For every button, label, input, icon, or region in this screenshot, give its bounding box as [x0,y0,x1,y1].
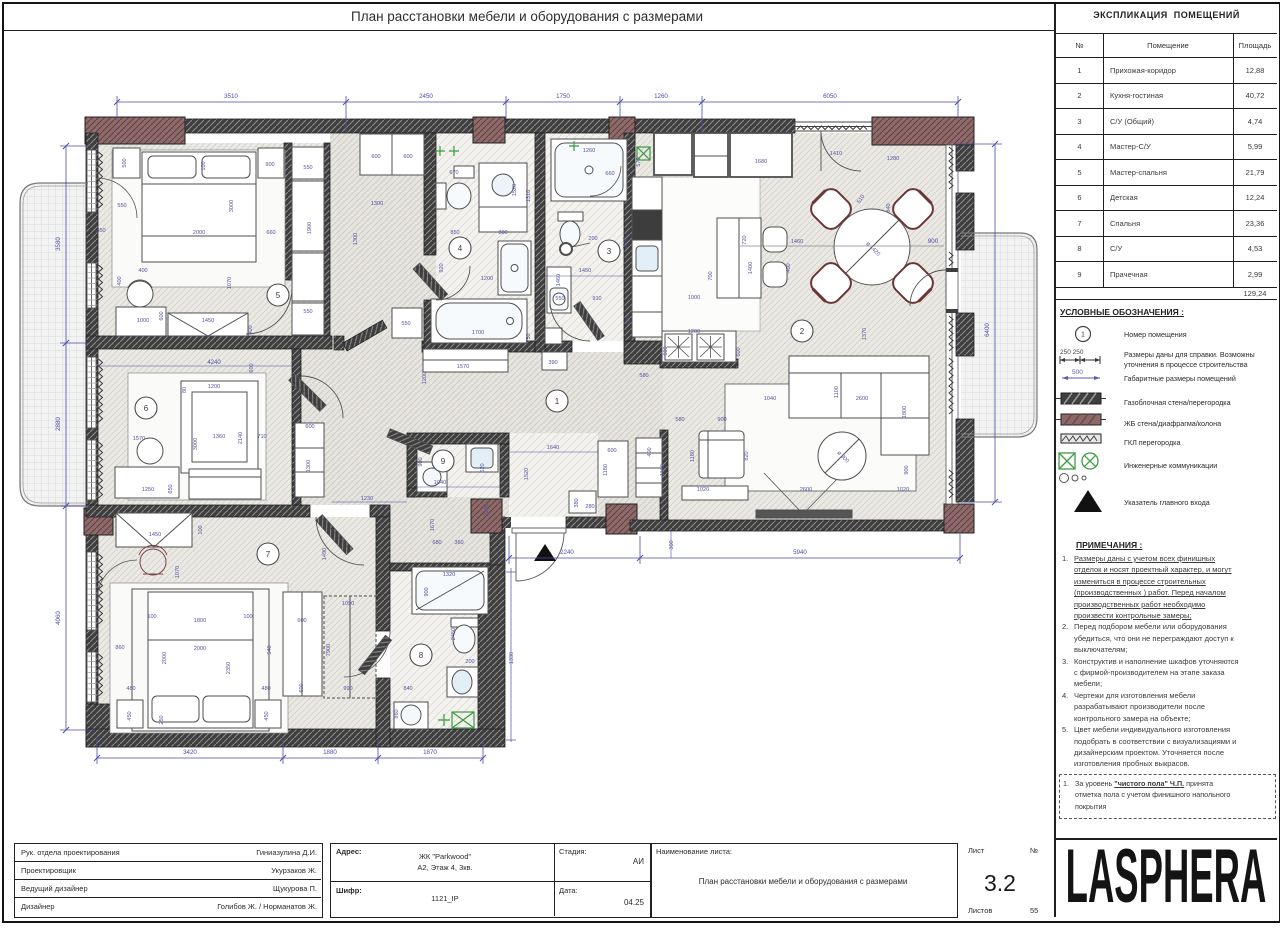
svg-text:600: 600 [736,347,742,356]
svg-text:570: 570 [636,157,642,166]
svg-text:1370: 1370 [862,328,868,340]
svg-text:1160: 1160 [660,464,666,476]
svg-text:580: 580 [675,417,684,423]
svg-text:450: 450 [264,711,270,720]
svg-text:1450: 1450 [149,532,161,538]
svg-text:900: 900 [717,417,726,423]
svg-text:550: 550 [401,321,410,327]
svg-text:2600: 2600 [856,396,868,402]
svg-text:80: 80 [182,387,188,393]
svg-text:500: 500 [1072,369,1083,376]
svg-text:280: 280 [585,504,594,510]
svg-text:1300: 1300 [371,201,383,207]
svg-text:670: 670 [449,170,458,176]
svg-text:600: 600 [297,618,306,624]
svg-text:600: 600 [626,315,632,324]
svg-text:1700: 1700 [472,330,484,336]
svg-text:550: 550 [303,309,312,315]
svg-text:1040: 1040 [764,396,776,402]
svg-text:1100: 1100 [834,386,840,398]
svg-text:1260: 1260 [654,93,668,100]
svg-text:200: 200 [588,236,597,242]
svg-text:1490: 1490 [322,548,328,560]
svg-text:720: 720 [742,235,748,244]
svg-text:4060: 4060 [55,611,62,625]
svg-text:100: 100 [198,525,204,534]
svg-text:390: 390 [548,360,557,366]
svg-text:1750: 1750 [556,93,570,100]
svg-text:1300: 1300 [353,233,359,245]
svg-text:480: 480 [261,686,270,692]
svg-text:1570: 1570 [457,364,469,370]
svg-text:6050: 6050 [823,93,837,100]
svg-text:1260: 1260 [583,148,595,154]
svg-text:660: 660 [266,230,275,236]
svg-text:900: 900 [424,587,430,596]
svg-text:1400: 1400 [748,262,754,274]
svg-text:4240: 4240 [207,360,221,366]
svg-text:2140: 2140 [238,432,244,444]
svg-text:1450: 1450 [202,318,214,324]
svg-text:7: 7 [266,550,271,559]
svg-text:540: 540 [267,645,273,654]
svg-text:600: 600 [305,424,314,430]
svg-text:620: 620 [480,463,486,472]
svg-text:1870: 1870 [423,749,437,756]
svg-text:1900: 1900 [307,222,313,234]
svg-text:1230: 1230 [361,496,373,502]
svg-text:750: 750 [526,333,532,342]
svg-text:1090: 1090 [342,601,354,607]
svg-text:8: 8 [419,651,424,660]
svg-text:840: 840 [886,203,892,212]
svg-text:990: 990 [343,686,352,692]
svg-text:600: 600 [403,154,412,160]
svg-text:600: 600 [159,311,165,320]
svg-text:1250: 1250 [142,487,154,493]
svg-text:1200: 1200 [208,384,220,390]
svg-text:2840: 2840 [623,237,629,249]
svg-text:LASPHERA: LASPHERA [1066,840,1267,917]
svg-text:2000: 2000 [194,646,206,652]
svg-text:1800: 1800 [194,618,206,624]
svg-text:3580: 3580 [55,237,62,251]
svg-text:1180: 1180 [603,464,609,476]
svg-text:900: 900 [418,457,424,466]
svg-text:1300: 1300 [306,460,312,472]
svg-text:3420: 3420 [183,749,197,756]
svg-text:1460: 1460 [791,239,803,245]
svg-text:250: 250 [159,715,165,724]
svg-text:2880: 2880 [55,417,62,431]
svg-text:550: 550 [303,165,312,171]
svg-text:5: 5 [276,291,281,300]
svg-text:600: 600 [607,448,616,454]
svg-text:920: 920 [439,263,445,272]
svg-text:500: 500 [122,158,128,167]
svg-text:100: 100 [147,614,156,620]
svg-text:1410: 1410 [830,151,842,157]
svg-text:900: 900 [904,465,910,474]
svg-text:1520: 1520 [512,184,518,196]
svg-text:850: 850 [450,230,459,236]
svg-text:1310: 1310 [526,190,532,202]
svg-text:1: 1 [1081,332,1085,339]
svg-text:1460: 1460 [556,274,562,286]
svg-text:1880: 1880 [323,749,337,756]
svg-text:9: 9 [441,457,446,466]
svg-text:580: 580 [639,373,648,379]
svg-text:600: 600 [299,683,305,692]
svg-text:400: 400 [248,325,254,334]
svg-text:900: 900 [928,238,939,245]
svg-text:1200: 1200 [422,372,428,384]
svg-text:6: 6 [144,404,149,413]
svg-text:710: 710 [257,434,266,440]
svg-text:2450: 2450 [419,93,433,100]
svg-text:250 250: 250 250 [1060,349,1084,356]
svg-text:860: 860 [394,709,400,718]
svg-text:2350: 2350 [226,662,232,674]
svg-text:400: 400 [786,263,792,272]
svg-text:1280: 1280 [887,156,899,162]
svg-text:1320: 1320 [443,572,455,578]
svg-text:3: 3 [607,247,612,256]
svg-text:7900: 7900 [326,644,332,656]
svg-text:850: 850 [96,228,105,234]
svg-text:5940: 5940 [793,549,807,556]
svg-text:550: 550 [117,203,126,209]
svg-text:900: 900 [265,162,274,168]
svg-text:2200: 2200 [484,504,490,516]
svg-text:680: 680 [432,540,441,546]
svg-text:1800: 1800 [902,406,908,418]
svg-text:1670: 1670 [430,519,436,531]
svg-text:600: 600 [663,346,669,355]
svg-text:2450: 2450 [451,628,457,640]
svg-text:1520: 1520 [524,468,530,480]
svg-text:550: 550 [555,296,564,302]
svg-text:380: 380 [574,498,580,507]
svg-text:1040: 1040 [434,480,446,486]
svg-text:400: 400 [647,447,653,456]
svg-text:1070: 1070 [175,566,181,578]
svg-text:1680: 1680 [755,159,767,165]
svg-text:4: 4 [458,244,463,253]
svg-text:100: 100 [201,161,207,170]
svg-text:450: 450 [127,711,133,720]
svg-text:1570: 1570 [133,436,145,442]
svg-text:910: 910 [592,296,601,302]
svg-text:360: 360 [454,540,463,546]
svg-text:1200: 1200 [481,276,493,282]
svg-text:1: 1 [555,397,560,406]
svg-text:1640: 1640 [547,445,559,451]
svg-text:1450: 1450 [579,268,591,274]
svg-text:2000: 2000 [193,230,205,236]
svg-text:2240: 2240 [560,549,574,556]
svg-text:3000: 3000 [229,200,235,212]
svg-text:650: 650 [168,484,174,493]
svg-text:2: 2 [800,327,805,336]
svg-text:1020: 1020 [697,487,709,493]
svg-text:1360: 1360 [213,434,225,440]
svg-text:2000: 2000 [162,652,168,664]
svg-text:1180: 1180 [690,450,696,462]
svg-text:840: 840 [403,686,412,692]
svg-text:600: 600 [249,363,255,372]
svg-text:480: 480 [126,686,135,692]
svg-text:860: 860 [115,645,124,651]
svg-text:660: 660 [605,171,614,177]
svg-text:880: 880 [498,230,507,236]
svg-text:1070: 1070 [227,277,233,289]
svg-text:700: 700 [708,271,714,280]
svg-text:400: 400 [117,276,123,285]
svg-text:1000: 1000 [688,295,700,301]
svg-text:300: 300 [669,540,675,549]
svg-text:3000: 3000 [193,438,199,450]
svg-text:200: 200 [465,659,474,665]
svg-text:100: 100 [243,614,252,620]
svg-text:1330: 1330 [509,652,515,664]
svg-text:1000: 1000 [137,318,149,324]
svg-text:600: 600 [371,154,380,160]
svg-text:6400: 6400 [984,323,991,337]
svg-text:3510: 3510 [224,93,238,100]
svg-text:400: 400 [138,268,147,274]
svg-text:820: 820 [744,451,750,460]
svg-text:1020: 1020 [897,487,909,493]
svg-text:2600: 2600 [800,487,812,493]
svg-text:1200: 1200 [688,329,700,335]
